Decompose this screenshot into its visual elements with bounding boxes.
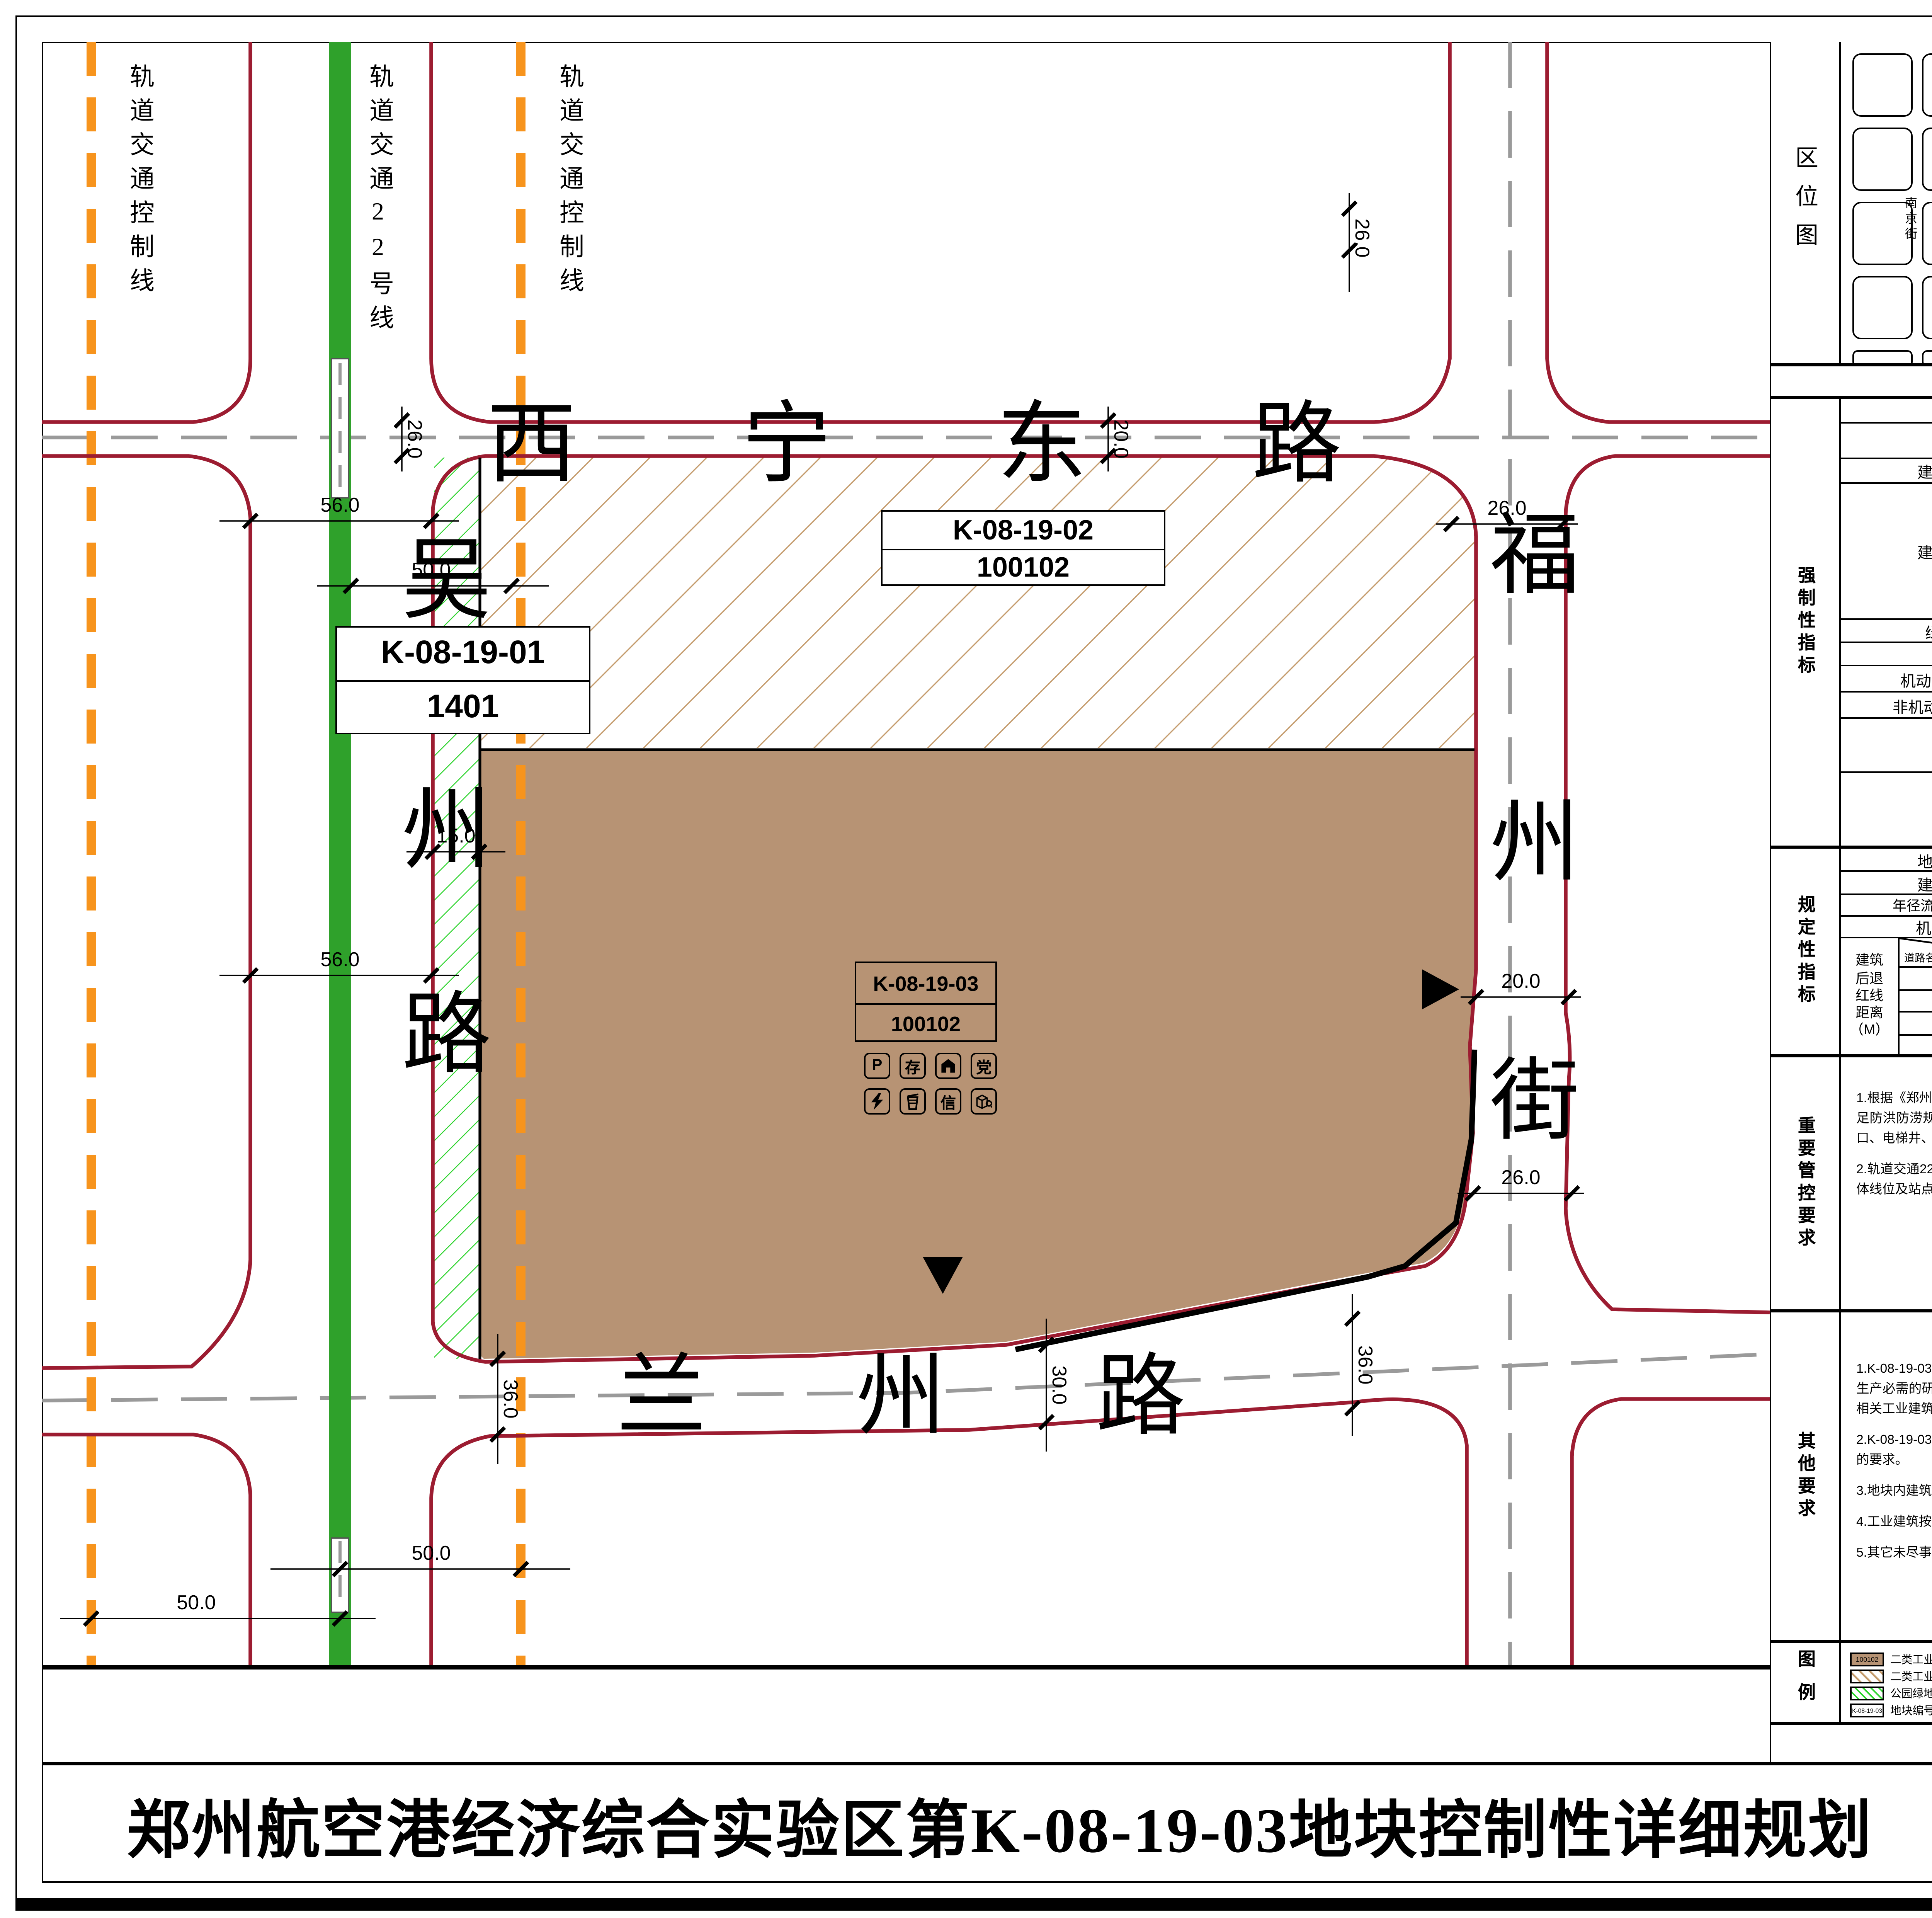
row-label: 机动车停车位配建标准	[1841, 666, 1932, 691]
party-glyph: 党	[976, 1054, 992, 1077]
dim-label: 26.0	[1501, 1166, 1540, 1189]
road-name-wuzhou-char: 吴	[402, 531, 492, 630]
loc-street-nanjing: 南京街	[1903, 196, 1920, 243]
setback-row: 兰州路（30M） ≥10 ≥15 ≥20	[1900, 990, 1932, 1013]
title-bar: 郑州航空港经济综合实验区第K-08-19-03地块控制性详细规划 地上图则 10	[42, 1762, 1932, 1883]
row-label: 容积率	[1841, 643, 1932, 665]
dim-label: 36.0	[1354, 1345, 1376, 1384]
parcel-label-k081901: K-08-19-01 1401	[335, 626, 590, 734]
parcel-code-swatch: K-08-19-03	[1850, 1704, 1884, 1717]
legend-item: 二类工业用地	[1850, 1668, 1932, 1685]
road-name-wuzhou-char: 路	[402, 985, 492, 1085]
trash-collection-icon	[900, 1088, 926, 1115]
metro-line-22	[329, 42, 351, 1670]
dim-label: 56.0	[320, 948, 359, 971]
property-mgmt-icon	[935, 1053, 961, 1079]
section-prescriptive: 规定性指标	[1771, 849, 1841, 1057]
corner-label-road: 道路名称	[1904, 949, 1932, 965]
legend-item: K-08-19-03地块编号	[1850, 1702, 1932, 1719]
legend: 100102二类工业用地 二类工业用地 公园绿地 K-08-19-03地块编号 …	[1841, 1643, 1932, 1725]
setback-header-row: 建筑高度H（M） 道路名称 H≤24 24<H≤60 60<H≤100	[1900, 938, 1932, 968]
legend-item: 公园绿地	[1850, 1685, 1932, 1702]
dim-label: 50.0	[177, 1591, 216, 1614]
row-label: 地块编码	[1841, 399, 1932, 422]
table-row: 年径流总量控制率 % ≥60	[1841, 895, 1932, 917]
table-row: 容积率 >1.5，<3.0	[1841, 643, 1932, 666]
setback-label: 建筑后退红线距离（M）	[1841, 938, 1900, 1057]
row-label: 地块面积	[1841, 849, 1932, 870]
legend-label: 二类工业用地	[1890, 1669, 1932, 1684]
setback-road: 福州街（20M）	[1900, 1013, 1932, 1033]
indicator-panel: 区位图 苏秦	[1770, 42, 1932, 1762]
parcel-code: K-08-19-02	[883, 512, 1164, 550]
legend-label: 地块编号	[1890, 1703, 1932, 1718]
road-name-fuzhou-char: 街	[1490, 1052, 1580, 1151]
table-row: 建筑系数 % >40	[1841, 459, 1932, 484]
party-office-icon: 党	[971, 1053, 997, 1079]
dim-label: 36.0	[499, 1379, 522, 1418]
other-item: 2.K-08-19-03地块内机动车配建、非机动车配建应符合《郑州市城市规划管理…	[1856, 1430, 1932, 1470]
park-green-swatch	[1850, 1687, 1884, 1700]
legend-label: 二类工业用地	[1890, 1652, 1932, 1667]
bicycle-storage-icon: 存	[900, 1053, 926, 1079]
row-label: 年径流总量控制率	[1841, 895, 1932, 915]
other-item: 3.地块内建筑应满足《郑州市城市规划管理技术规定》中后退道路红线、绿线及地界的要…	[1856, 1481, 1932, 1501]
row-label: 建筑面积	[1841, 872, 1932, 893]
section-mandatory: 强制性指标	[1771, 399, 1841, 849]
control-requirements: 1.根据《郑州市自然资源和规划局关于加强防洪防涝规划管理工作的通知(试行)》的要…	[1841, 1057, 1932, 1312]
site-plan-map: 26.0 20.0 26.0 26.0 20.0 26.0 56.0 50.0 …	[42, 42, 1770, 1670]
parcel-code: K-08-19-03	[856, 963, 995, 1005]
parking-glyph: P	[872, 1057, 883, 1074]
facility-icons: P 存 党 信	[864, 1053, 997, 1115]
road-name-xiningdong: 西宁东路	[487, 395, 1507, 494]
table-row: 建筑面积 M² >76095，<152190	[1841, 872, 1932, 895]
setback-row: 西宁东路（30M） ≥10 ≥15 ≥15	[1900, 1035, 1932, 1057]
industrial-solid-swatch: 100102	[1850, 1653, 1884, 1666]
location-map-title: 区位图	[1771, 42, 1841, 363]
industrial-hatch-swatch	[1850, 1670, 1884, 1683]
other-item: 1.K-08-19-03地块行政办公及生活服务设施用地面积不应大于工业项目总用地…	[1856, 1359, 1932, 1419]
table-row: 机动车停车位配建标准 见其他要求	[1841, 666, 1932, 693]
legend-label: 公园绿地	[1890, 1686, 1932, 1701]
parking-garage-icon: P	[864, 1053, 890, 1079]
section-legend: 图例	[1771, 1643, 1841, 1725]
dim-label: 20.0	[1501, 970, 1540, 992]
row-label: 建筑系数	[1841, 459, 1932, 482]
row-label: 用地性质	[1841, 424, 1932, 458]
control-item: 2.轨道交通22号线沿吴州路敷设，两侧各控制50米的轨道交通控制线，轨道交通控制…	[1856, 1159, 1932, 1200]
row-label: 建筑高度	[1841, 484, 1932, 618]
table-row: 绿地率 % >10，<20	[1841, 620, 1932, 643]
row-label: 非机动车停车位配建标准	[1841, 693, 1932, 717]
indicator-table-title: K-08-19-03地块控制性指标	[1771, 366, 1932, 399]
page: 26.0 20.0 26.0 26.0 20.0 26.0 56.0 50.0 …	[0, 0, 1932, 1918]
road-name-fuzhou-char: 州	[1490, 794, 1580, 893]
control-item: 1.根据《郑州市自然资源和规划局关于加强防洪防涝规划管理工作的通知(试行)》的要…	[1856, 1088, 1932, 1149]
parcel-label-k081903: K-08-19-03 100102	[855, 962, 997, 1042]
plan-sheet: 26.0 20.0 26.0 26.0 20.0 26.0 56.0 50.0 …	[0, 0, 1932, 1918]
metro-control-line-label-east: 轨道交通控制线	[549, 63, 586, 388]
other-requirements: 1.K-08-19-03地块行政办公及生活服务设施用地面积不应大于工业项目总用地…	[1841, 1312, 1932, 1643]
frame-shadow-bottom	[15, 1898, 1932, 1911]
parcel-use-code: 1401	[337, 682, 589, 733]
dim-label: 56.0	[320, 494, 359, 516]
parcel-use-code: 100102	[856, 1005, 995, 1042]
setback-road: 吴州路（50M）	[1900, 968, 1932, 989]
setback-diagonal-cell: 建筑高度H（M） 道路名称	[1900, 938, 1932, 966]
location-map-section: 区位图 苏秦	[1771, 42, 1932, 366]
table-row: 机动车出入口方向 东、南	[1841, 917, 1932, 938]
dim-label: 50.0	[412, 1542, 451, 1564]
table-row: 非机动车停车位配建标准 见其他要求	[1841, 693, 1932, 719]
parcel-label-k081902: K-08-19-02 100102	[881, 510, 1165, 586]
parcel-k081902-hatch	[481, 458, 1475, 748]
other-item: 5.其它未尽事宜按照河南省、郑州市相关规范、政策文件要求及《郑州市城市规划管理技…	[1856, 1543, 1932, 1563]
sheet-title: 郑州航空港经济综合实验区第K-08-19-03地块控制性详细规划	[127, 1765, 1873, 1883]
section-control: 重要管控要求	[1771, 1057, 1841, 1312]
section-other: 其他要求	[1771, 1312, 1841, 1643]
table-row: 地块编码 K-08-19-03	[1841, 399, 1932, 424]
telecom-room-icon: 信	[935, 1088, 961, 1115]
metro-line-22-label: 轨道交通22号线	[359, 63, 396, 419]
parcel-use-code: 100102	[883, 550, 1164, 586]
parcel-code: K-08-19-01	[337, 628, 589, 682]
telecom-glyph: 信	[940, 1090, 956, 1113]
table-row: 用地性质 二类工业用地（100102）	[1841, 424, 1932, 459]
row-label: 防火间距	[1841, 773, 1932, 846]
road-name-fuzhou-char: 福	[1490, 506, 1580, 606]
row-label: 日照间距	[1841, 719, 1932, 771]
setback-row: 福州街（20M） ≥10 ≥15 ≥15	[1900, 1013, 1932, 1035]
other-item: 4.工业建筑按照《绿色工业建筑评价标准》GB/T 50878-2013绿色建筑标…	[1856, 1512, 1932, 1532]
table-row: 地块面积 M² 50730	[1841, 849, 1932, 872]
mail-delivery-icon	[971, 1088, 997, 1115]
substation-icon	[864, 1088, 890, 1115]
metro-control-line-label-west: 轨道交通控制线	[119, 63, 156, 388]
legend-item: 100102二类工业用地	[1850, 1651, 1932, 1668]
table-row: 建筑高度 M <80(其中生产性用房<50M)，且须符合机场管理机构关于项目核准…	[1841, 484, 1932, 620]
dim-label: 26.0	[1351, 218, 1373, 257]
location-map: 苏秦路 西宁东路 兰州路 拉萨东路 南京街 上海街 吴州路 福州街 台北街 翔航…	[1841, 42, 1932, 363]
site-plan-drawing: 26.0 20.0 26.0 26.0 20.0 26.0 56.0 50.0 …	[42, 42, 1770, 1670]
dim-label: 26.0	[403, 419, 426, 458]
table-row: 日照间距 日照间距标准应符合国家相关规范及《郑州市城市规划管理技术规定》等有关规…	[1841, 719, 1932, 773]
road-name-lanzhou: 兰州路	[617, 1347, 1335, 1447]
setback-row: 吴州路（50M） ≥15 ≥20 ≥25	[1900, 968, 1932, 990]
bike-glyph: 存	[905, 1054, 920, 1077]
road-name-wuzhou-char: 州	[402, 781, 492, 881]
row-label: 机动车出入口方向	[1841, 917, 1932, 937]
table-row: 防火间距 防火间距标准应符合《建筑设计防火规范（GB 50016-2014）》（…	[1841, 773, 1932, 849]
row-label: 绿地率	[1841, 620, 1932, 642]
setback-road: 兰州路（30M）	[1900, 990, 1932, 1011]
setback-road: 西宁东路（30M）	[1900, 1035, 1932, 1054]
